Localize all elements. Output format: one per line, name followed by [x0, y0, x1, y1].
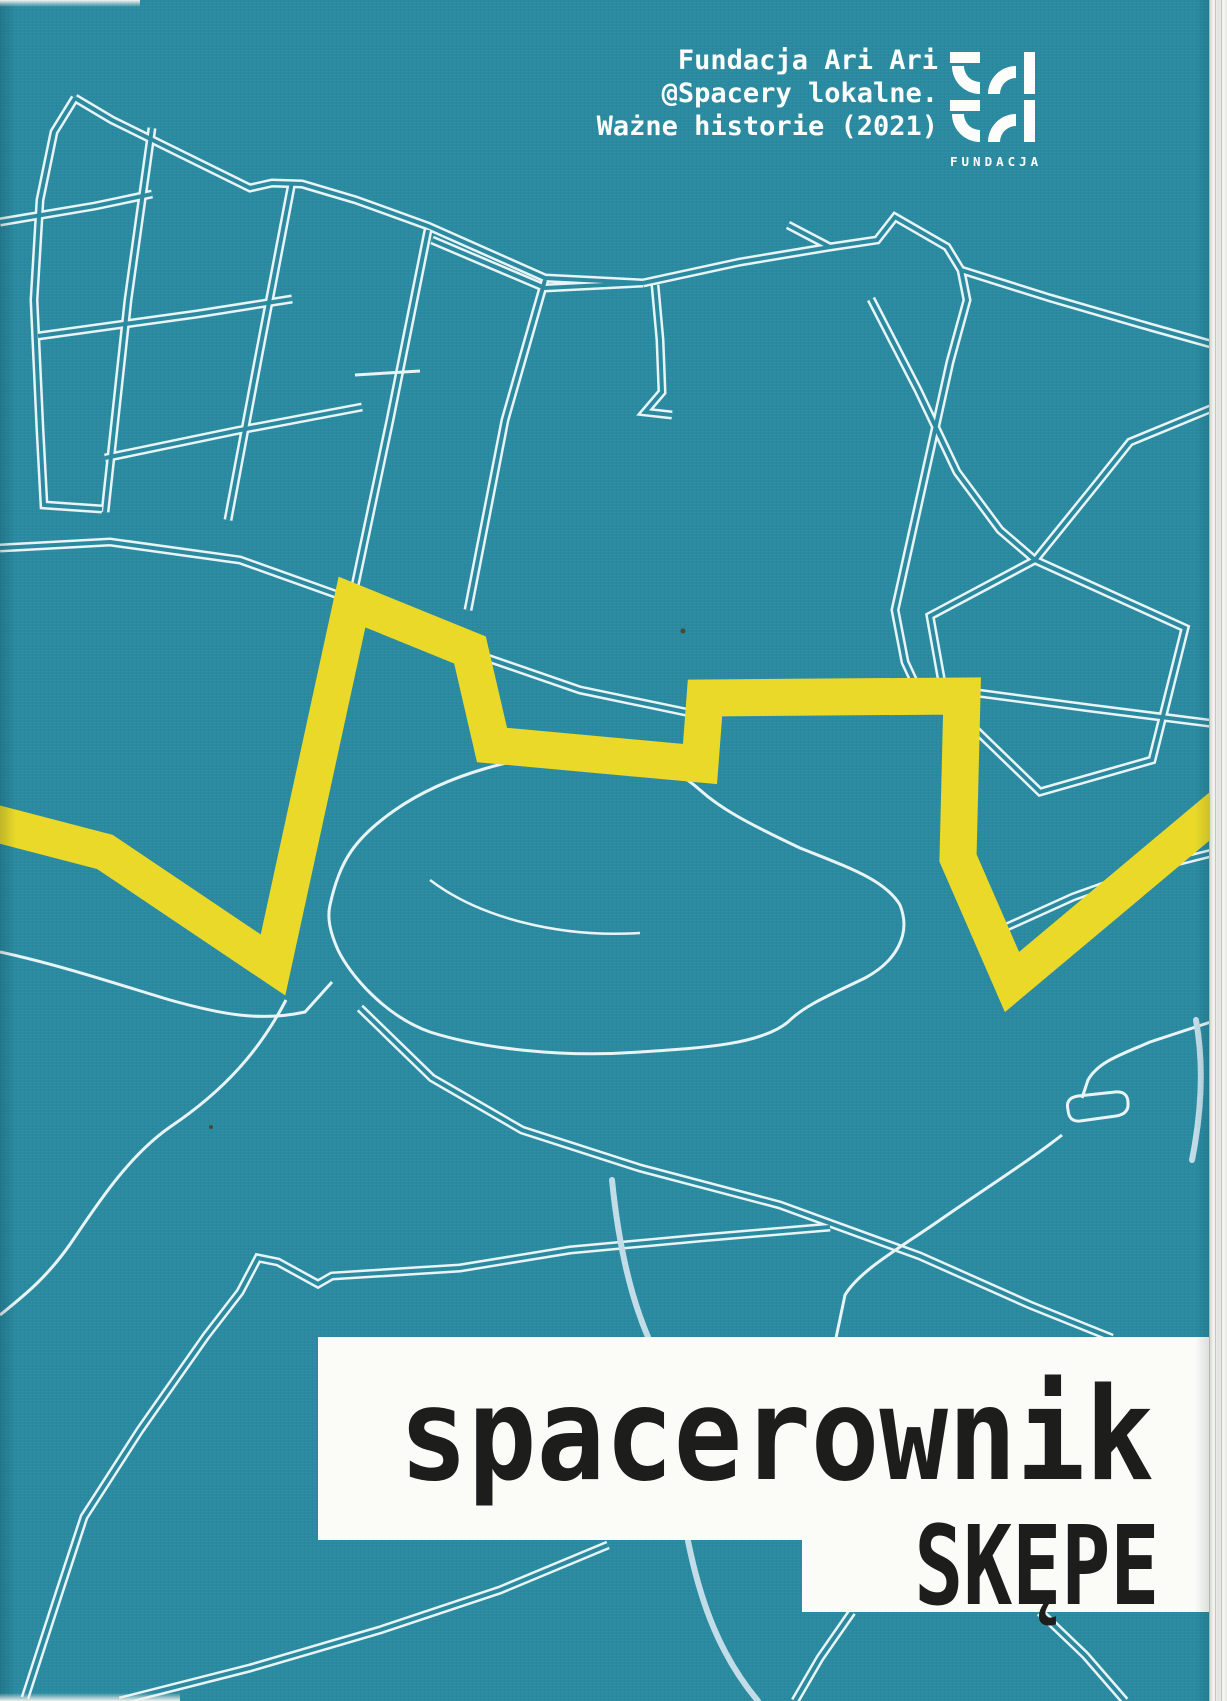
scan-sliver-bottom-left [0, 1693, 180, 1701]
title-sub: SKĘPE [914, 1524, 1211, 1610]
logo-caption: FUNDACJA [950, 154, 1042, 169]
fundacja-ari-ari-logo: FUNDACJA [950, 52, 1042, 169]
credit-line-2: @Spacery lokalne. [597, 77, 938, 110]
title-panel-sub: SKĘPE [802, 1540, 1211, 1612]
stadium-loop [1067, 1092, 1128, 1121]
lake-inner-shore [430, 880, 640, 934]
credit-line-3: Ważne historie (2021) [597, 110, 938, 143]
title-main: spacerownik [400, 1372, 1211, 1500]
grid-stub [355, 371, 420, 375]
left-edge-shadow [0, 0, 16, 1701]
credit-line-1: Fundacja Ari Ari [597, 44, 938, 77]
credits-block: Fundacja Ari Ari @Spacery lokalne. Ważne… [597, 44, 938, 143]
ari-ari-logo-icon [950, 52, 1038, 144]
scan-page-edge [1209, 0, 1227, 1701]
lake-west-shore [0, 1000, 286, 1315]
right-edge-shadow [1195, 0, 1209, 1701]
book-cover: Fundacja Ari Ari @Spacery lokalne. Ważne… [0, 0, 1227, 1701]
lake-outline [329, 751, 904, 1053]
scan-sliver-top-left [0, 0, 140, 7]
